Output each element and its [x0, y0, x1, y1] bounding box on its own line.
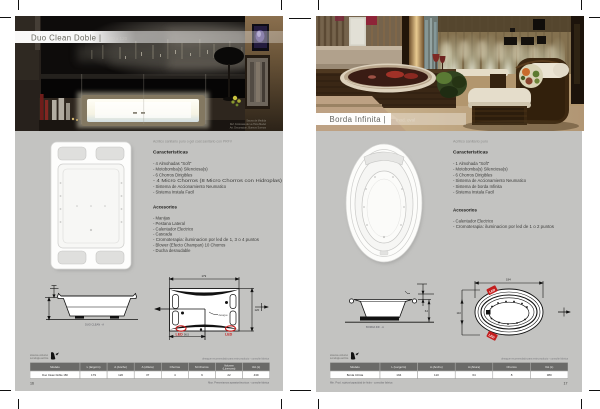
- svg-text:L (Largo/m): L (Largo/m): [391, 365, 406, 369]
- svg-text:L (largo/m): L (largo/m): [87, 365, 101, 369]
- svg-text:120: 120: [118, 373, 123, 377]
- svg-text:- Sistema de Accionamiento Neu: - Sistema de Accionamiento Neumatico: [453, 178, 527, 183]
- svg-text:- Manijas: - Manijas: [153, 216, 170, 221]
- svg-text:56.5: 56.5: [184, 333, 189, 336]
- svg-text:Duo Clean Doble 180: Duo Clean Doble 180: [42, 373, 68, 377]
- svg-text:- Cascada: - Cascada: [153, 232, 173, 237]
- svg-text:A (Altura): A (Altura): [142, 365, 154, 369]
- svg-text:(L/persona): (L/persona): [223, 368, 236, 371]
- svg-text:A (Ancho): A (Ancho): [114, 365, 127, 369]
- svg-text:Accesorios: Accesorios: [453, 208, 477, 214]
- svg-text:Caracteristicas: Caracteristicas: [153, 150, 188, 156]
- svg-text:64: 64: [472, 373, 476, 377]
- svg-text:179: 179: [202, 274, 207, 278]
- svg-text:desague recomendado para este: desague recomendado para este producto -…: [202, 358, 269, 361]
- svg-text:sistema exclusivo: sistema exclusivo: [30, 354, 49, 357]
- svg-text:- Sistema Instala Facil: - Sistema Instala Facil: [153, 190, 194, 195]
- svg-text:Max. Presentamos aparatos/tecn: Max. Presentamos aparatos/tecnicos - con…: [208, 382, 269, 385]
- svg-text:DUO CLEAN - A: DUO CLEAN - A: [85, 323, 104, 327]
- svg-text:Duo Clean Doble |: Duo Clean Doble |: [31, 33, 101, 42]
- svg-text:37: 37: [146, 373, 150, 377]
- svg-text:Chorros: Chorros: [170, 365, 181, 369]
- svg-text:desague recomendado para este: desague recomendado para este producto -…: [501, 358, 568, 361]
- svg-text:110: 110: [457, 311, 462, 315]
- svg-text:- Pestana Lateral: - Pestana Lateral: [153, 221, 185, 226]
- svg-text:desague: desague: [219, 314, 229, 317]
- svg-text:BORDA INF - A: BORDA INF - A: [366, 325, 384, 329]
- svg-text:mod. oval: mod. oval: [396, 118, 415, 123]
- svg-text:tecnologia acrilica: tecnologia acrilica: [30, 357, 49, 360]
- svg-text:194: 194: [396, 373, 401, 377]
- svg-text:- Blower (Efecto Champan) 10 C: - Blower (Efecto Champan) 10 Chorros: [153, 243, 225, 248]
- svg-text:120: 120: [255, 308, 260, 312]
- svg-text:Min. Prod. sujetos/capacidad d: Min. Prod. sujetos/capacidad de hidro - …: [330, 382, 393, 385]
- svg-text:- Cromoterapia: iluminacion po: - Cromoterapia: iluminacion por led de 1…: [453, 224, 554, 229]
- svg-text:- Calentador Electrico: - Calentador Electrico: [453, 219, 494, 224]
- svg-text:Chorros: Chorros: [506, 365, 517, 369]
- svg-text:Vol.(L): Vol.(L): [545, 365, 553, 369]
- svg-text:- Sistema de Accionamiento Neu: - Sistema de Accionamiento Neumatico: [153, 184, 227, 189]
- svg-text:Acrilico sanitario puro o gel: Acrilico sanitario puro o gel coat sanit…: [153, 140, 233, 144]
- svg-text:- 4 Almohadas "Soft": - 4 Almohadas "Soft": [153, 161, 192, 166]
- svg-text:64: 64: [425, 309, 429, 313]
- svg-text:Vol.(L): Vol.(L): [252, 365, 260, 369]
- svg-text:A (Altura): A (Altura): [468, 365, 480, 369]
- svg-text:- 1 Almohada "Soft": - 1 Almohada "Soft": [453, 161, 490, 166]
- svg-text:M.Chorros: M.Chorros: [195, 365, 209, 369]
- svg-text:110: 110: [434, 373, 439, 377]
- svg-text:- Ducha desnudable: - Ducha desnudable: [153, 248, 191, 253]
- svg-text:Borda Infinita: Borda Infinita: [347, 373, 364, 377]
- svg-text:- 4 Micro Chorros (8 Micro Cho: - 4 Micro Chorros (8 Micro Chorros con H…: [153, 178, 283, 183]
- svg-text:- Motobomba(s) Silenciosa(s): - Motobomba(s) Silenciosa(s): [453, 167, 508, 172]
- svg-text:16: 16: [30, 381, 34, 385]
- svg-text:Modelo: Modelo: [350, 365, 360, 369]
- svg-text:17: 17: [564, 381, 568, 385]
- svg-text:- 6 Chorros Dirigibles: - 6 Chorros Dirigibles: [453, 172, 492, 177]
- svg-text:- Motobomba(s) Silenciosa(s): - Motobomba(s) Silenciosa(s): [153, 167, 208, 172]
- svg-text:LED: LED: [225, 333, 233, 337]
- svg-text:sistema exclusivo: sistema exclusivo: [330, 354, 349, 357]
- svg-text:Borda Infinita |: Borda Infinita |: [330, 115, 387, 124]
- svg-text:- 6 Chorros Dirigibles: - 6 Chorros Dirigibles: [153, 172, 192, 177]
- svg-text:194: 194: [506, 278, 511, 282]
- svg-text:179: 179: [91, 373, 96, 377]
- svg-text:439: 439: [254, 373, 259, 377]
- svg-text:- Calentador Electrico: - Calentador Electrico: [153, 226, 194, 231]
- svg-text:Accesorios: Accesorios: [153, 205, 177, 211]
- svg-text:LED: LED: [176, 333, 184, 337]
- svg-text:22: 22: [227, 373, 231, 377]
- svg-text:Art. Decoracion, Buenos Suenos: Art. Decoracion, Buenos Suenos: [230, 127, 267, 130]
- svg-text:Modelo: Modelo: [50, 365, 60, 369]
- svg-text:- Sistema Instala Facil: - Sistema Instala Facil: [453, 190, 494, 195]
- svg-text:380: 380: [547, 373, 552, 377]
- svg-text:- Cromoterapia: iluminacion po: - Cromoterapia: iluminacion por led de 1…: [153, 237, 259, 242]
- svg-text:- Sistema de borda Infinita: - Sistema de borda Infinita: [453, 184, 503, 189]
- svg-text:tecnologia acrilica: tecnologia acrilica: [330, 357, 349, 360]
- svg-text:180 x 120: 180 x 120: [107, 36, 128, 41]
- svg-text:Acrilico sanitario puro: Acrilico sanitario puro: [453, 140, 488, 144]
- svg-text:A (Ancho): A (Ancho): [430, 365, 443, 369]
- svg-text:Caracteristicas: Caracteristicas: [453, 150, 488, 156]
